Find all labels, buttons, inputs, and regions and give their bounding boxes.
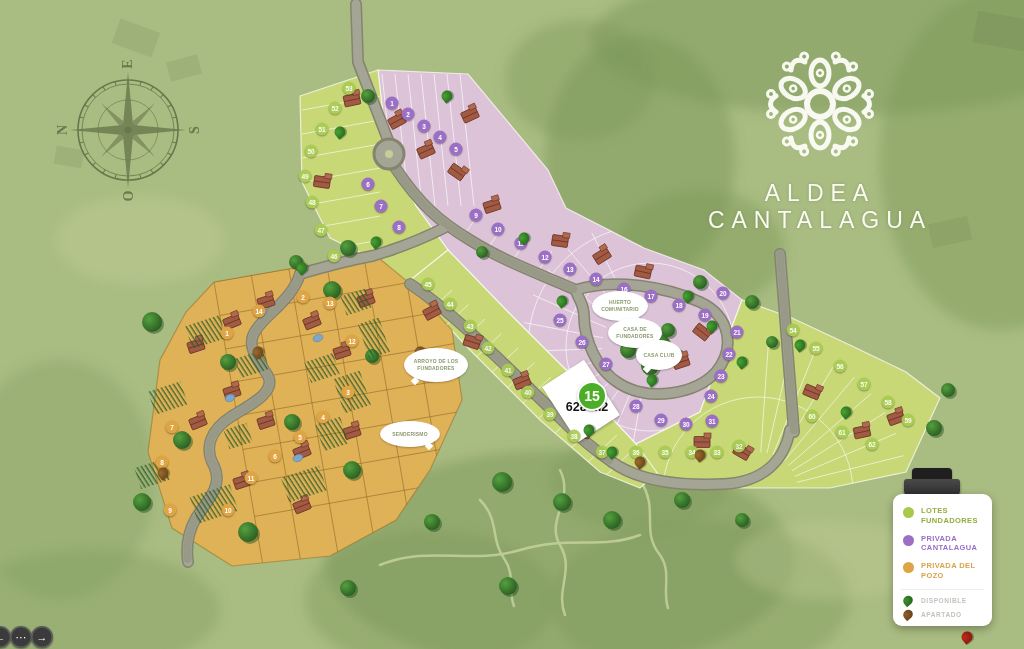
legend: LOTES FUNDADORES PRIVADA CANTALAGUA PRIV… [893,494,992,626]
lot-marker[interactable]: 1 [386,97,399,110]
lot-marker[interactable]: 24 [705,390,718,403]
map-label: HUERTO COMUNITARIO [592,291,648,321]
lot-marker[interactable]: 32 [733,440,746,453]
lot-marker[interactable]: 7 [375,200,388,213]
legend-label: DISPONIBLE [921,597,967,604]
lot-marker[interactable]: 23 [715,370,728,383]
lot-marker[interactable]: 6 [362,178,375,191]
lot-marker[interactable]: 60 [806,410,819,423]
lot-marker[interactable]: 6 [269,450,282,463]
legend-item-privada-del-pozo: PRIVADA DEL POZO [901,561,984,581]
lot-marker[interactable]: 14 [253,305,266,318]
purple-dot-icon [903,535,914,546]
legend-label: LOTES FUNDADORES [921,506,984,526]
more-options-button[interactable]: ⋯ [10,626,32,648]
compass-n: N [55,125,70,135]
orange-dot-icon [903,562,914,573]
lot-marker[interactable]: 2 [402,108,415,121]
lot-marker[interactable]: 10 [222,504,235,517]
lot-marker[interactable]: 9 [470,209,483,222]
lot-marker[interactable]: 41 [502,364,515,377]
lot-marker[interactable]: 43 [464,320,477,333]
map-label: ARROYO DE LOS FUNDADORES [404,348,468,382]
lot-marker[interactable]: 22 [723,348,736,361]
lot-marker[interactable]: 13 [324,297,337,310]
compass-e: E [120,59,135,68]
brand-rosette-icon [740,24,900,184]
lot-marker[interactable]: 56 [834,360,847,373]
lot-marker[interactable]: 30 [680,418,693,431]
compass-o: O [121,190,136,201]
lot-marker[interactable]: 50 [305,145,318,158]
map-label: SENDERISMO [380,421,440,447]
lot-marker[interactable]: 2 [297,291,310,304]
lot-marker[interactable]: 62 [866,438,879,451]
legend-divider [901,589,984,590]
legend-item-privada-cantalagua: PRIVADA CANTALAGUA [901,534,984,554]
lot-marker[interactable]: 55 [810,342,823,355]
lot-marker[interactable]: 42 [482,342,495,355]
legend-item-disponible: DISPONIBLE [901,596,984,605]
lot-marker[interactable]: 3 [418,120,431,133]
green-dot-icon [903,507,914,518]
selected-lot-marker[interactable]: 15 [577,381,607,411]
legend-label: PRIVADA DEL POZO [921,561,984,581]
lot-marker[interactable]: 40 [522,386,535,399]
lot-marker[interactable]: 49 [299,170,312,183]
legend-item-apartado: APARTADO [901,610,984,619]
compass-rose: E N S O [38,40,218,220]
tree-green-icon [901,593,914,606]
lot-marker[interactable]: 3 [342,386,355,399]
tree-brown-icon [901,607,914,620]
lot-marker[interactable]: 51 [316,123,329,136]
lot-marker[interactable]: 35 [659,446,672,459]
lot-marker[interactable]: 59 [902,414,915,427]
next-button[interactable]: → [31,626,53,648]
lot-marker[interactable]: 5 [450,143,463,156]
lot-marker[interactable]: 14 [590,273,603,286]
lot-marker[interactable]: 11 [245,472,258,485]
lot-marker[interactable]: 21 [731,326,744,339]
legend-item-lotes-fundadores: LOTES FUNDADORES [901,506,984,526]
lot-marker[interactable]: 26 [576,336,589,349]
map-label: CASA CLUB [636,340,682,370]
brand-title: ALDEA CANTALAGUA [650,180,990,234]
lot-marker[interactable]: 4 [317,411,330,424]
lot-marker[interactable]: 61 [836,426,849,439]
lot-marker[interactable]: 1 [221,327,234,340]
lot-marker[interactable]: 54 [787,324,800,337]
lot-marker[interactable]: 28 [630,400,643,413]
lot-marker[interactable]: 10 [492,223,505,236]
lot-marker[interactable]: 46 [328,250,341,263]
lot-marker[interactable]: 29 [655,414,668,427]
lot-marker[interactable]: 4 [434,131,447,144]
compass-s: S [187,126,202,134]
legend-label: APARTADO [921,611,962,618]
lot-marker[interactable]: 8 [393,221,406,234]
lot-marker[interactable]: 53 [343,82,356,95]
legend-label: PRIVADA CANTALAGUA [921,534,984,554]
lot-marker[interactable]: 45 [422,278,435,291]
lot-marker[interactable]: 12 [539,251,552,264]
masterplan-map[interactable]: E N S O ALDEA CANTALAGUA 628 m2 15 12345… [0,0,1024,649]
lot-marker[interactable]: 52 [329,102,342,115]
lot-marker[interactable]: 39 [544,408,557,421]
lot-marker[interactable]: 25 [554,314,567,327]
lot-marker[interactable]: 5 [294,431,307,444]
lot-marker[interactable]: 13 [564,263,577,276]
lot-marker[interactable]: 38 [568,430,581,443]
lot-marker[interactable]: 9 [164,504,177,517]
lot-marker[interactable]: 31 [706,415,719,428]
lot-marker[interactable]: 47 [315,224,328,237]
lot-marker[interactable]: 33 [711,446,724,459]
lot-marker[interactable]: 58 [882,396,895,409]
lot-marker[interactable]: 44 [444,298,457,311]
lot-marker[interactable]: 7 [166,421,179,434]
lot-marker[interactable]: 27 [600,358,613,371]
lot-marker[interactable]: 57 [858,378,871,391]
lot-marker[interactable]: 12 [346,335,359,348]
lot-marker[interactable]: 48 [306,196,319,209]
lot-marker[interactable]: 20 [717,287,730,300]
